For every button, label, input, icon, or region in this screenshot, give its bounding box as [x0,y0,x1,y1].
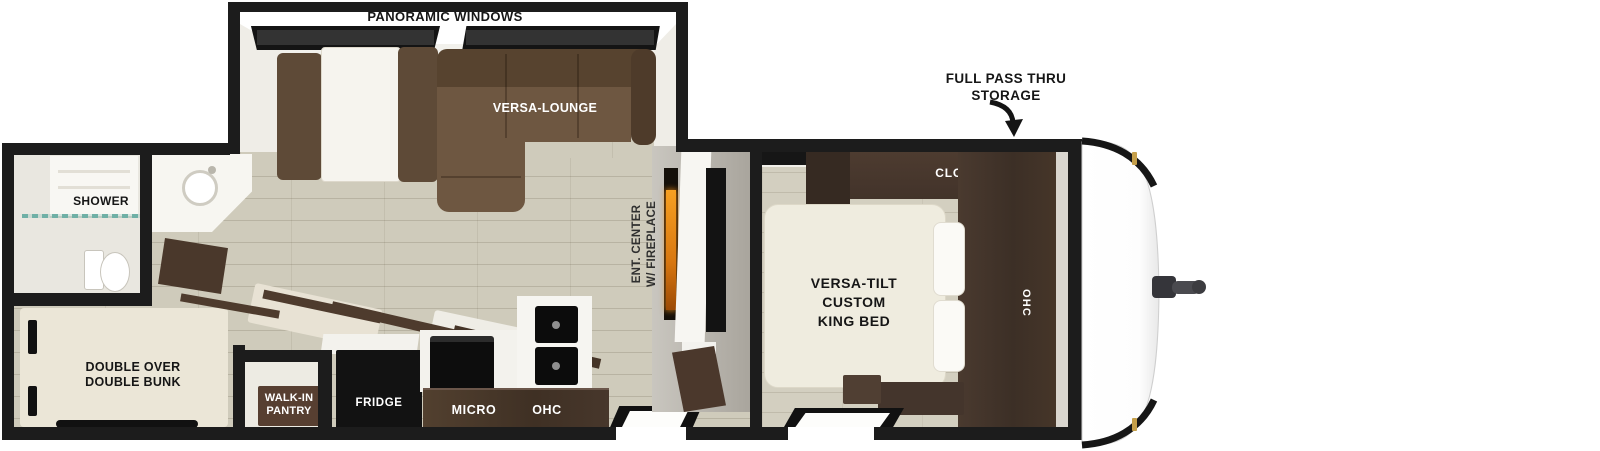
pantry-label: WALK-IN PANTRY [258,392,320,419]
fireplace-flame [666,190,676,310]
toilet-bowl [100,252,130,292]
king-bed-label-line1: VERSA-TILT [764,274,944,293]
pantry-sign: WALK-IN PANTRY [258,386,320,426]
slideout-left-wall [228,2,240,154]
ent-center-label-line2: W/ FIREPLACE [645,167,660,321]
bedroom-entry-door-gap [788,427,874,440]
storage-callout-line1: FULL PASS THRU [895,70,1117,87]
window-glass [466,30,654,45]
window-glass [257,30,434,45]
bunk-ladder-rail [28,320,37,354]
sink-drain [552,321,560,329]
shower-glass-streak [22,214,140,218]
sink-basin [535,306,578,343]
shower-enclosure [50,156,138,218]
main-entry-door-gap [616,427,686,440]
sofa-seam [505,54,507,138]
bed-pillow [933,300,965,372]
micro-label: MICRO [433,403,515,418]
pantry-label-line2: PANTRY [258,405,320,418]
bottom-wall [2,427,1080,440]
entry-mat-inner [622,411,688,427]
shower-shelf [58,186,130,189]
king-bed-label: VERSA-TILT CUSTOM KING BED [764,274,944,331]
lounge-bed-mattress [321,47,401,182]
front-top-wall [686,139,1068,152]
closet-end-cap [806,150,850,204]
kitchen-ohc-label: OHC [515,403,579,418]
vanity-faucet [208,166,216,174]
rear-wall [2,143,14,440]
bunk-label-line2: DOUBLE BUNK [43,375,223,390]
fridge-label: FRIDGE [336,396,422,410]
interior-wall-strip [1056,152,1068,427]
ent-center-label: ENT. CENTER W/ FIREPLACE [630,167,660,321]
vanity-sink [182,170,218,206]
lounge-bed-right-rail [398,47,438,182]
front-cap-body [1082,142,1159,444]
bed-foot-step [843,375,881,404]
fridge [336,350,422,430]
storage-callout-arrow-icon [980,99,1024,139]
bedroom-left-wall [750,143,762,440]
sink-drain [552,362,560,370]
bed-pillow [933,222,965,296]
pantry-right-wall [318,350,332,440]
chaise-seam [441,176,521,178]
bunk-label-line1: DOUBLE OVER [43,360,223,375]
front-cap [1068,128,1218,451]
bunk-ladder-rail [28,386,37,416]
hinge-icon [1132,418,1137,431]
ent-center-label-line1: ENT. CENTER [630,167,645,321]
versa-lounge-armrest [631,49,656,145]
bathroom-right-wall [140,154,152,306]
shower-shelf [58,170,130,173]
hitch-coupler [1152,276,1206,298]
king-bed-label-line3: KING BED [764,312,944,331]
bunk-label: DOUBLE OVER DOUBLE BUNK [43,360,223,391]
panoramic-window-right [456,26,664,50]
rear-top-wall [2,143,230,155]
versa-lounge-sofa-back [437,49,655,87]
panoramic-windows-label: PANORAMIC WINDOWS [240,9,650,25]
bedroom-ohc-cabinet [958,150,1058,430]
sink-basin [535,347,578,385]
slideout-right-wall [676,2,688,152]
pantry-label-line1: WALK-IN [258,392,320,405]
rv-floorplan: VERSA-LOUNGE SHOWER DOUBLE OVER DOUBLE B… [0,0,1600,451]
versa-lounge-label: VERSA-LOUNGE [447,101,643,116]
bathroom-bottom-wall [2,293,152,306]
sofa-seam [577,54,579,138]
hinge-icon [1132,152,1137,165]
range-cooktop [430,336,494,396]
king-bed-label-line2: CUSTOM [764,293,944,312]
bedroom-ohc-label: OHC [1016,273,1032,333]
lounge-bed-left-rail [277,53,322,180]
tv-panel [706,168,726,332]
